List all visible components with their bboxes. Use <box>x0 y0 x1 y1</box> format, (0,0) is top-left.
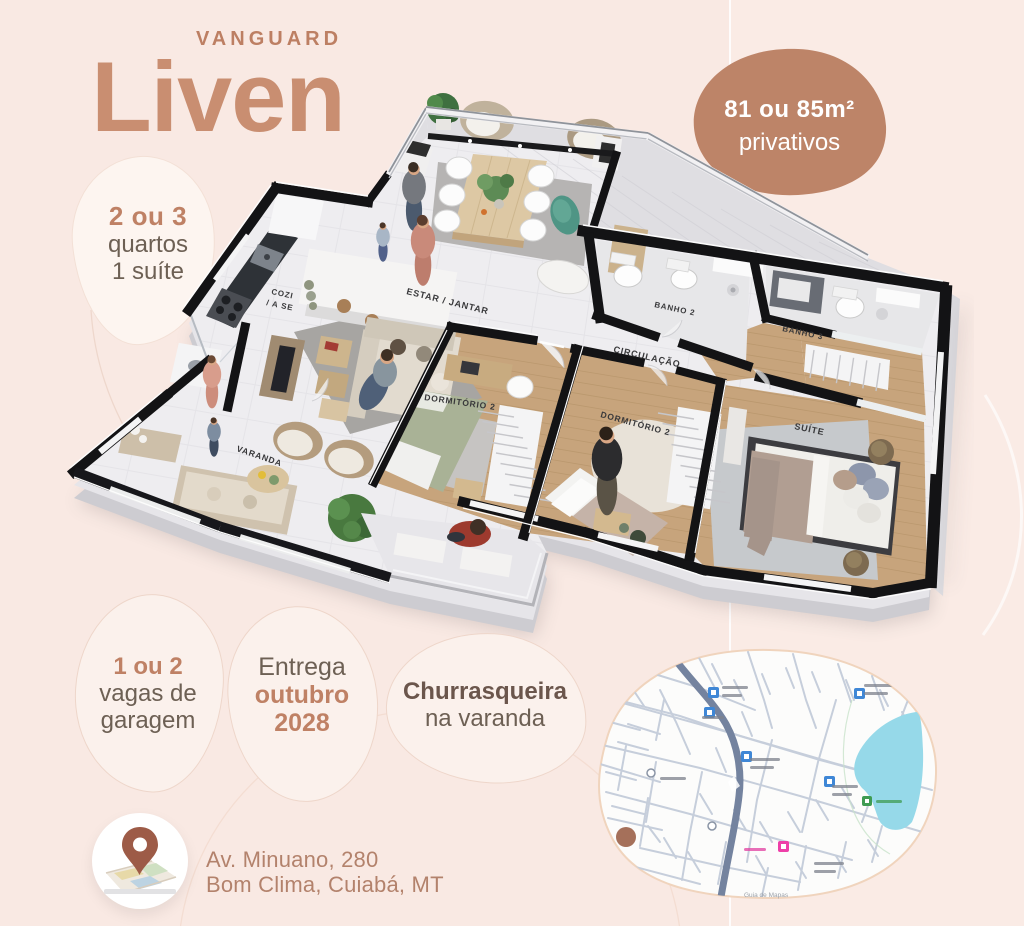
svg-text:Guia de Mapas: Guia de Mapas <box>744 892 789 899</box>
